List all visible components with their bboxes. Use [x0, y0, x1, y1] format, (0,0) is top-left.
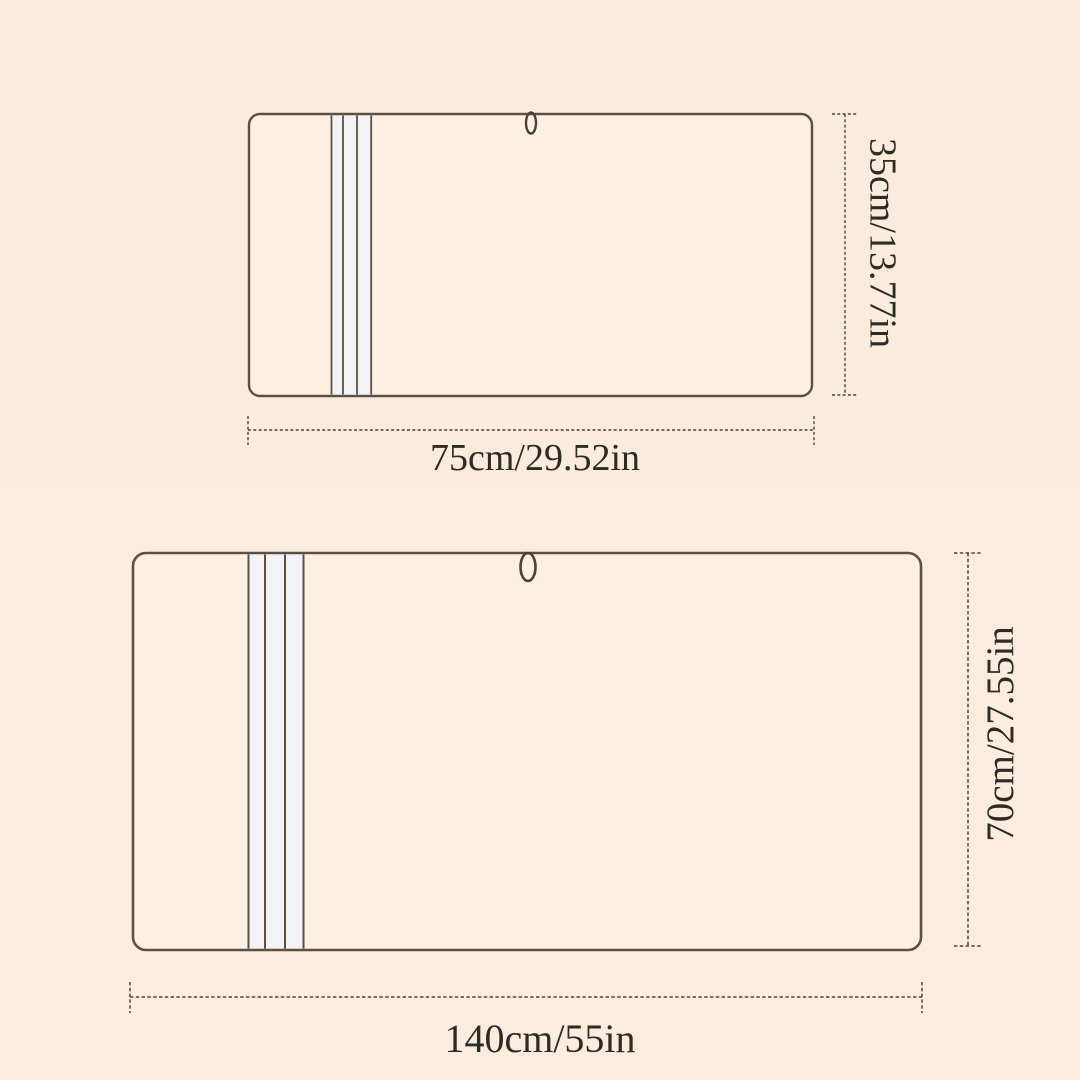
- svg-text:140cm/55in: 140cm/55in: [444, 1016, 635, 1061]
- svg-text:75cm/29.52in: 75cm/29.52in: [430, 437, 640, 479]
- svg-text:35cm/13.77in: 35cm/13.77in: [862, 138, 904, 348]
- svg-text:70cm/27.55in: 70cm/27.55in: [979, 626, 1022, 842]
